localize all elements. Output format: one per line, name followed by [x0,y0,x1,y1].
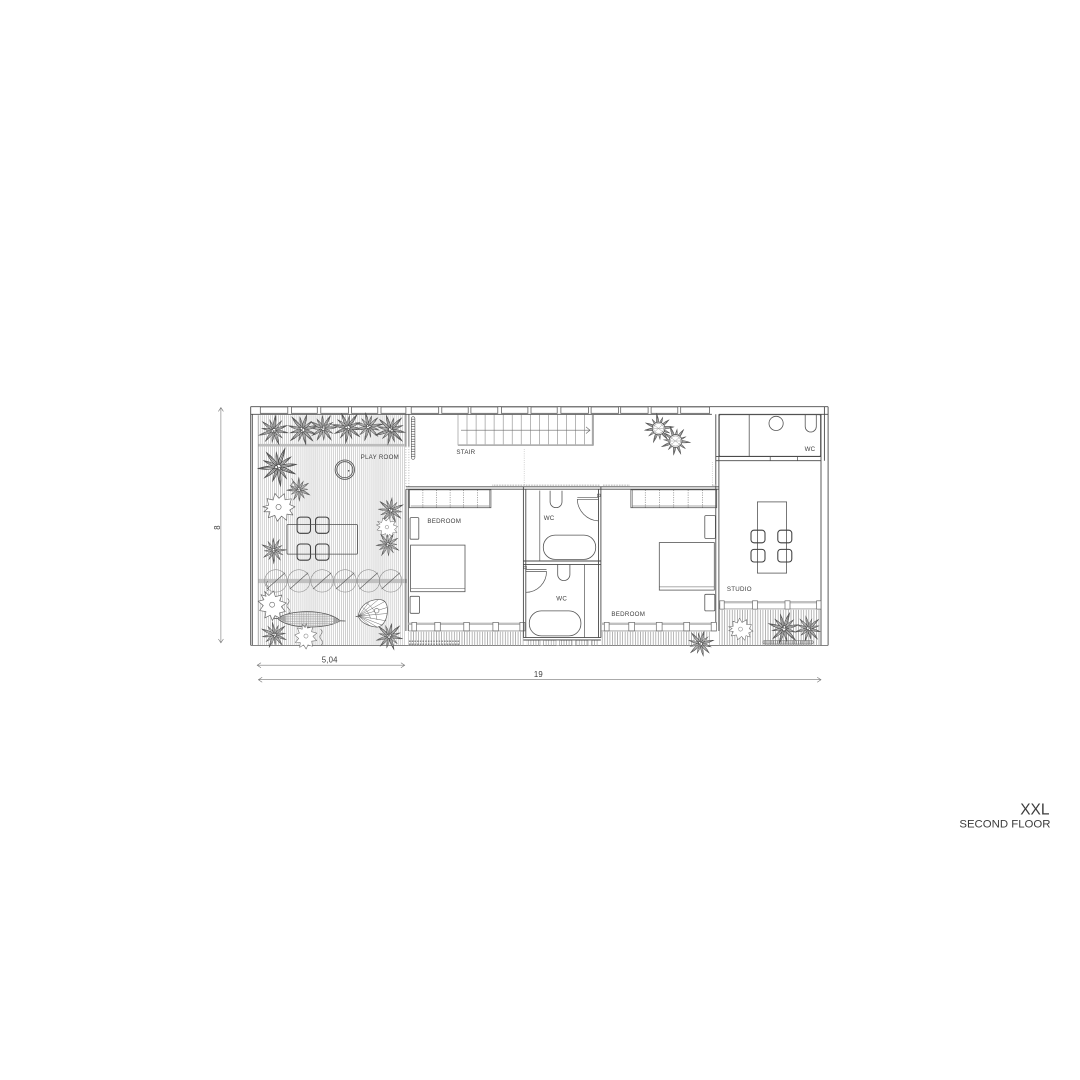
svg-text:SECOND FLOOR: SECOND FLOOR [959,819,1050,831]
svg-text:WC: WC [805,446,816,453]
svg-text:WC: WC [544,515,555,522]
svg-text:PLAY ROOM: PLAY ROOM [361,454,399,461]
svg-text:WC: WC [556,596,567,603]
svg-text:BEDROOM: BEDROOM [427,518,461,525]
svg-text:XXL: XXL [1020,801,1050,818]
svg-text:8: 8 [213,525,222,530]
svg-text:STUDIO: STUDIO [727,586,752,593]
svg-text:19: 19 [534,670,543,679]
svg-text:STAIR: STAIR [456,449,475,456]
svg-text:BEDROOM: BEDROOM [611,611,645,618]
svg-text:5,04: 5,04 [322,655,338,664]
